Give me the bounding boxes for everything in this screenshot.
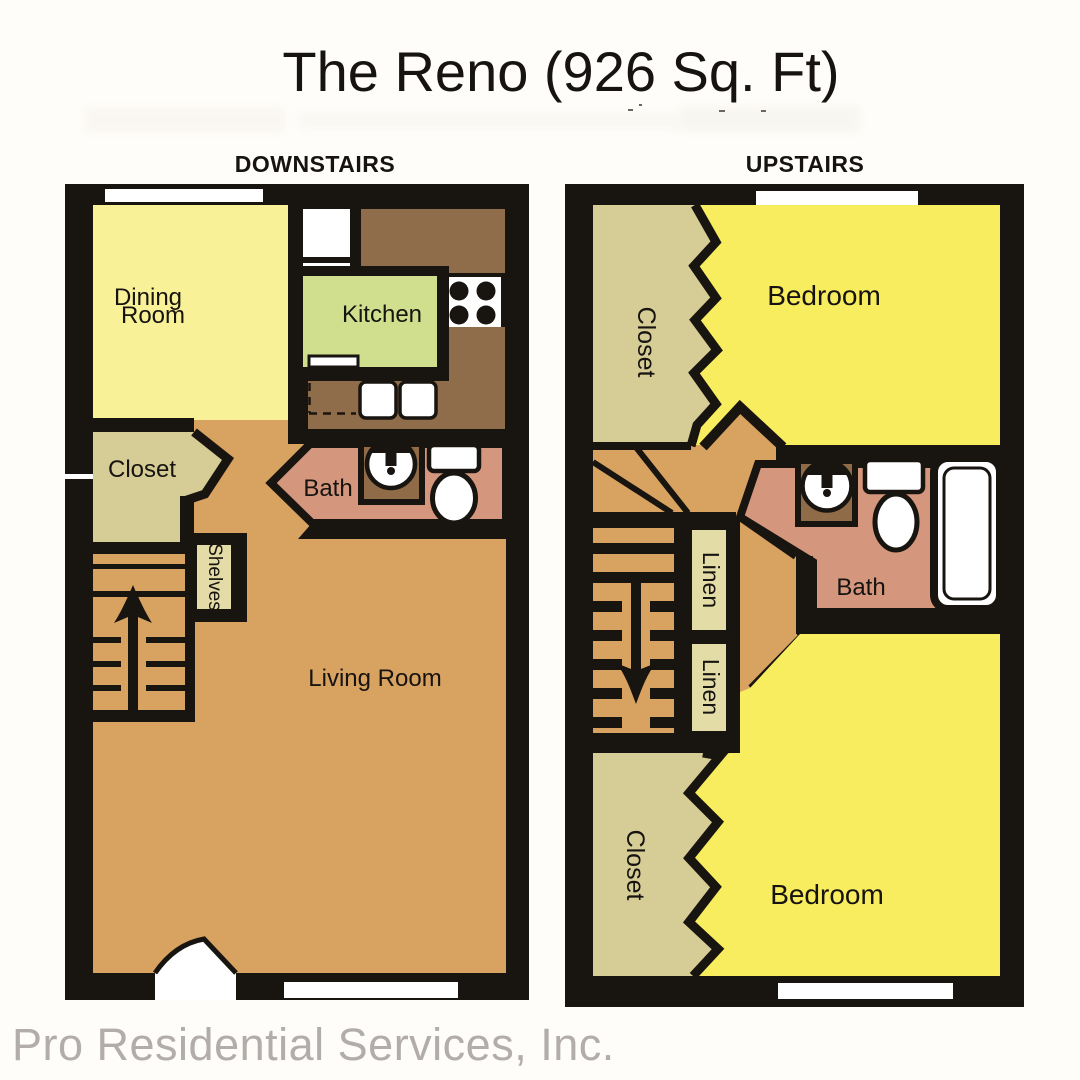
svg-text:Bedroom: Bedroom	[770, 879, 884, 910]
svg-text:Bath: Bath	[303, 475, 352, 502]
svg-text:Room: Room	[121, 302, 185, 329]
svg-text:Living Room: Living Room	[308, 665, 441, 692]
svg-text:Linen: Linen	[698, 659, 724, 715]
svg-text:Pro Residential Services, Inc.: Pro Residential Services, Inc.	[12, 1019, 615, 1070]
svg-text:Bath: Bath	[836, 574, 885, 601]
svg-text:Kitchen: Kitchen	[342, 301, 422, 328]
svg-text:Closet: Closet	[621, 830, 649, 901]
svg-text:The Reno (926 Sq. Ft): The Reno (926 Sq. Ft)	[282, 40, 839, 103]
svg-text:UPSTAIRS: UPSTAIRS	[746, 151, 865, 177]
svg-text:Shelves: Shelves	[204, 543, 225, 611]
svg-text:Closet: Closet	[632, 307, 660, 378]
svg-text:Bedroom: Bedroom	[767, 280, 881, 311]
svg-text:DOWNSTAIRS: DOWNSTAIRS	[235, 151, 395, 177]
svg-text:Linen: Linen	[698, 552, 724, 608]
svg-text:Closet: Closet	[108, 456, 176, 483]
